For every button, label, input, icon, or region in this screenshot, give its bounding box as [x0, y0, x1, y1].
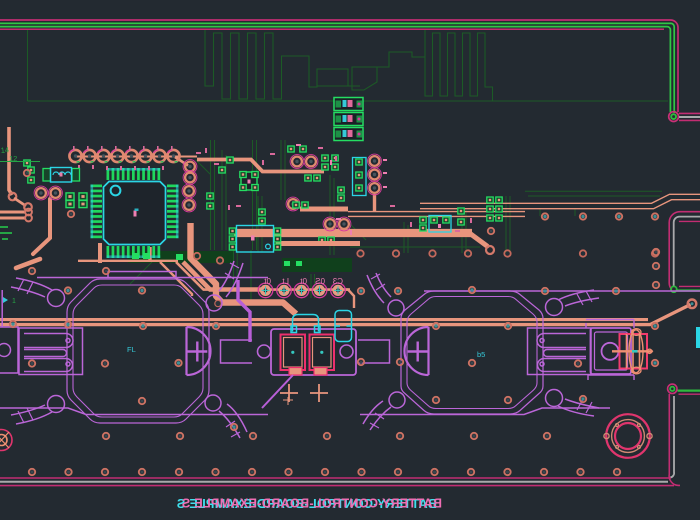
svg-text:BATTERY-CONTROL-BOARD-EXAMPLE: BATTERY-CONTROL-BOARD-EXAMPLE S [182, 497, 442, 511]
svg-text:FL: FL [127, 345, 136, 354]
svg-text:1: 1 [12, 298, 16, 305]
svg-text:0S: 0S [315, 277, 325, 286]
svg-text:0t: 0t [300, 277, 307, 286]
svg-text:0t: 0t [264, 277, 271, 286]
svg-text:b5: b5 [477, 350, 485, 359]
svg-text:C3: C3 [332, 277, 343, 286]
svg-text:Lt: Lt [282, 277, 289, 286]
